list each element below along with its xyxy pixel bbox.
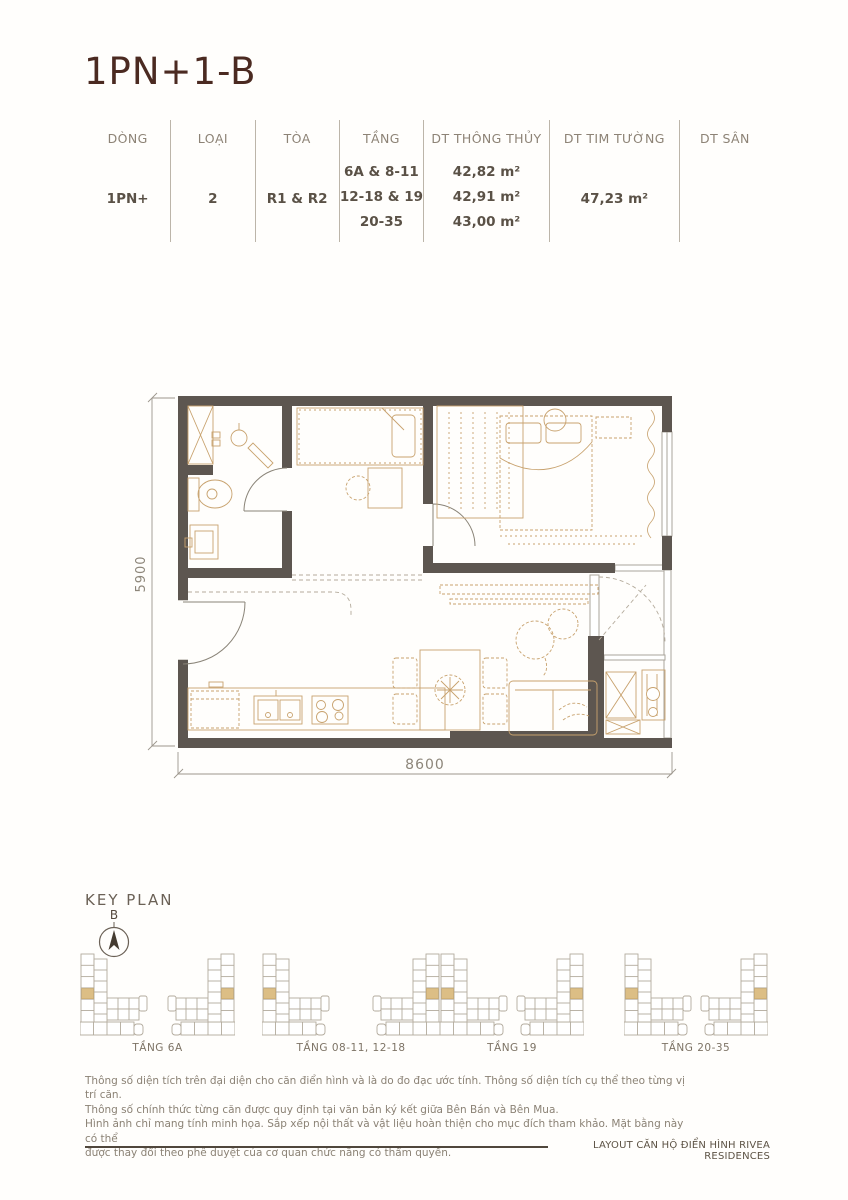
page-title: 1PN+1-B: [84, 50, 257, 93]
cell-toa: R1 & R2: [256, 156, 339, 242]
col-header: DT TIM TƯỜNG: [550, 120, 679, 156]
brochure-page: 1PN+1-B DÒNG 1PN+ LOẠI 2 TÒA R1 & R2 TẦN…: [0, 0, 848, 1200]
cell-thong-thuy: 42,82 m² 42,91 m² 43,00 m²: [424, 156, 549, 242]
table-col-loai: LOẠI 2: [170, 120, 254, 242]
bedroom-furniture: [437, 406, 655, 544]
area-line: 43,00 m²: [453, 214, 520, 230]
table-col-toa: TÒA R1 & R2: [255, 120, 339, 242]
tang-line: 20-35: [360, 214, 403, 230]
col-header: DT THÔNG THỦY: [424, 120, 549, 156]
floor-plan-drawing: 5900 8600: [135, 378, 680, 790]
key-plan-floor-20-35: [624, 952, 768, 1038]
table-col-thong-thuy: DT THÔNG THỦY 42,82 m² 42,91 m² 43,00 m²: [423, 120, 549, 242]
balcony-fixtures: [606, 670, 665, 734]
walls: [178, 396, 672, 748]
tang-line: 12-18 & 19: [340, 189, 423, 205]
table-col-dong: DÒNG 1PN+: [85, 120, 170, 242]
key-plan-floor-19: [440, 952, 584, 1038]
plus-one-room-furniture: [297, 408, 423, 508]
table-col-san: DT SÂN: [679, 120, 770, 242]
table-col-tim-tuong: DT TIM TƯỜNG 47,23 m²: [549, 120, 679, 242]
kitchen-fixtures: [188, 682, 445, 730]
col-header: DÒNG: [85, 120, 170, 156]
cell-san: [680, 156, 770, 242]
cell-dong: 1PN+: [85, 156, 170, 242]
col-header: DT SÂN: [680, 120, 770, 156]
note-line: Thông số diện tích trên đại diện cho căn…: [85, 1074, 695, 1103]
cell-tang: 6A & 8-11 12-18 & 19 20-35: [340, 156, 423, 242]
dining-furniture: [393, 650, 507, 730]
col-header: LOẠI: [171, 120, 254, 156]
key-plan-label: TẦNG 20-35: [624, 1042, 768, 1054]
cell-tim-tuong: 47,23 m²: [550, 156, 679, 242]
table-col-tang: TẦNG 6A & 8-11 12-18 & 19 20-35: [339, 120, 423, 242]
col-header: TÒA: [256, 120, 339, 156]
area-line: 42,82 m²: [453, 164, 520, 180]
tang-line: 6A & 8-11: [344, 164, 419, 180]
layout-caption: LAYOUT CĂN HỘ ĐIỂN HÌNH RIVEA RESIDENCES: [545, 1140, 770, 1162]
compass-letter: B: [110, 908, 118, 922]
spec-table: DÒNG 1PN+ LOẠI 2 TÒA R1 & R2 TẦNG 6A & 8…: [85, 120, 770, 242]
note-line: Thông số chính thức từng căn được quy đị…: [85, 1103, 695, 1117]
key-plan-label: TẦNG 08-11, 12-18: [262, 1042, 440, 1054]
bathroom-fixtures: [185, 406, 273, 559]
area-line: 42,91 m²: [453, 189, 520, 205]
cell-loai: 2: [171, 156, 254, 242]
footer-divider: [85, 1146, 548, 1148]
key-plan-label: TẦNG 19: [440, 1042, 584, 1054]
key-plan-floor-6a: [80, 952, 235, 1038]
living-furniture: [440, 585, 598, 735]
dimension-height-label: 5900: [135, 555, 149, 592]
key-plan-floor-08-18: [262, 952, 440, 1038]
key-plan-label: TẦNG 6A: [80, 1042, 235, 1054]
col-header: TẦNG: [340, 120, 423, 156]
dimension-width-label: 8600: [405, 757, 445, 773]
